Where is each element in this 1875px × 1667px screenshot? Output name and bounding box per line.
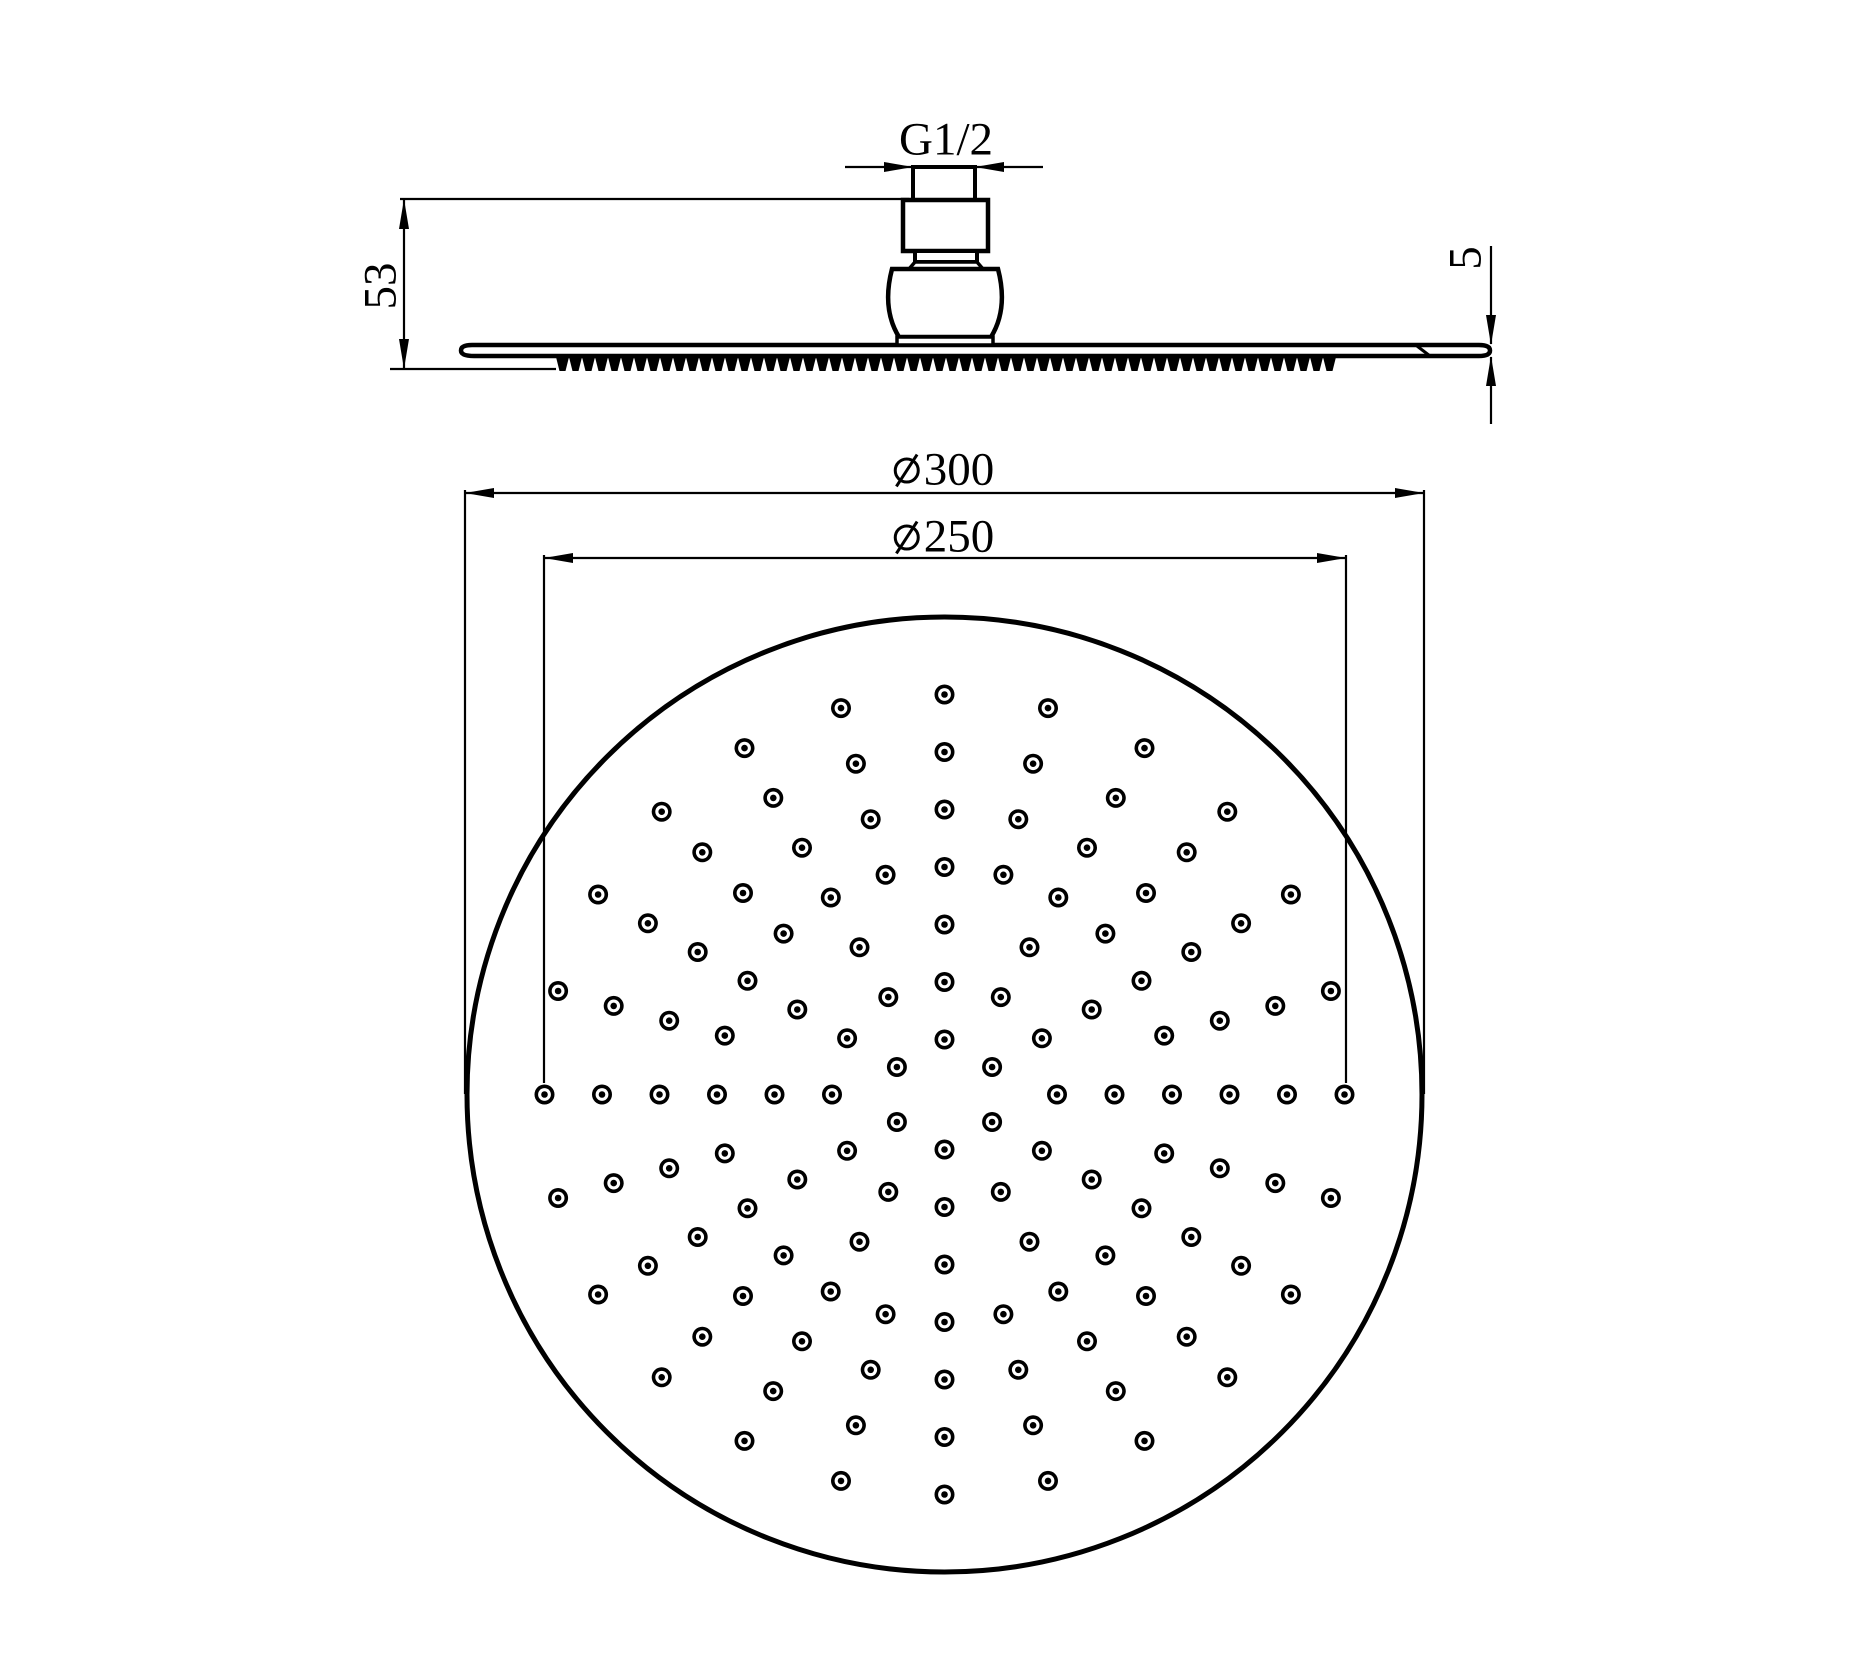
nozzle-dot [1154, 1026, 1174, 1046]
nozzle-dot [1082, 1170, 1102, 1190]
nozzle-dot [1177, 842, 1197, 862]
dim-d300-arrow-left [465, 488, 494, 498]
nozzle-dot [822, 1085, 842, 1105]
nozzle-dot [935, 1427, 955, 1447]
dimension-5 [1486, 246, 1496, 424]
nozzle-dot [548, 981, 568, 1001]
nozzle-dot [1032, 1141, 1052, 1161]
nozzle-dot [1321, 981, 1341, 1001]
nozzle-dot [935, 1197, 955, 1217]
nozzle-dot [592, 1085, 612, 1105]
nozzle-dot [1181, 942, 1201, 962]
nozzle-dot [878, 987, 898, 1007]
nozzle-dot [735, 1431, 755, 1451]
nozzle-dot [1154, 1143, 1174, 1163]
diameter-symbol [894, 524, 920, 550]
nozzle-dot [787, 1000, 807, 1020]
nozzle-dot [846, 1415, 866, 1435]
nozzle-dot [1023, 1415, 1043, 1435]
nozzle-dot [1210, 1158, 1230, 1178]
nozzle-dot [1020, 1232, 1040, 1252]
nozzle-dot [688, 942, 708, 962]
nozzle-circle-diameter-text: 250 [924, 514, 995, 561]
nozzle-dot [1082, 1000, 1102, 1020]
nozzle-dot [935, 972, 955, 992]
nozzle-dot [831, 1471, 851, 1491]
nozzle-dot [1095, 924, 1115, 944]
nozzle-dot [861, 1360, 881, 1380]
nozzle-dot [935, 685, 955, 705]
nozzle-dot [982, 1057, 1002, 1077]
nozzle-dot [935, 1312, 955, 1332]
nozzle-dot [792, 1331, 812, 1351]
edge-thickness-label: 5 [1443, 246, 1490, 270]
nozzle-dot [991, 1182, 1011, 1202]
nozzle-dot [604, 1173, 624, 1193]
nozzle-dot [652, 802, 672, 822]
nozzle-dot [774, 924, 794, 944]
dim-5-arrow-up [1486, 356, 1496, 386]
nozzle-dot [935, 742, 955, 762]
nozzle-dot [652, 1367, 672, 1387]
nozzle-dot [821, 888, 841, 908]
nozzle-dot [774, 1245, 794, 1265]
collar-base [897, 337, 993, 345]
nozzle-dots [535, 685, 1355, 1505]
diameter-symbol [894, 457, 920, 483]
nozzle-dot [935, 1030, 955, 1050]
nozzle-dot [548, 1188, 568, 1208]
spray-nozzle-teeth [556, 357, 1336, 371]
nozzle-dot [1181, 1227, 1201, 1247]
nozzle-dot [887, 1057, 907, 1077]
nozzle-dot [982, 1112, 1002, 1132]
nozzle-dot [588, 885, 608, 905]
nozzle-dot [837, 1028, 857, 1048]
nozzle-dot [1277, 1085, 1297, 1105]
nozzle-dot [1281, 1285, 1301, 1305]
nozzle-dot [878, 1182, 898, 1202]
side-view [390, 162, 1496, 424]
nozzle-dot [638, 913, 658, 933]
nozzle-dot [1177, 1327, 1197, 1347]
nozzle-dot [1095, 1245, 1115, 1265]
nozzle-dot [993, 865, 1013, 885]
nozzle-dot [935, 857, 955, 877]
edge-thickness-text: 5 [1443, 246, 1490, 270]
nozzle-dot [1077, 1331, 1097, 1351]
nozzle-dot [1281, 885, 1301, 905]
technical-drawing-canvas [0, 0, 1875, 1667]
nozzle-dot [535, 1085, 555, 1105]
nozzle-dot [1231, 913, 1251, 933]
nozzle-dot [733, 883, 753, 903]
nozzle-dot [692, 842, 712, 862]
nozzle-circle-diameter-label: 250 [894, 514, 995, 561]
nozzle-dot [831, 698, 851, 718]
nozzle-dot [1132, 971, 1152, 991]
nozzle-dot [1136, 883, 1156, 903]
nozzle-dot [993, 1304, 1013, 1324]
nozzle-dot [1220, 1085, 1240, 1105]
dim-d300-arrow-right [1395, 488, 1424, 498]
nozzle-dot [1008, 1360, 1028, 1380]
nozzle-dot [1321, 1188, 1341, 1208]
nozzle-dot [935, 1255, 955, 1275]
nozzle-dot [792, 838, 812, 858]
nozzle-dot [763, 1381, 783, 1401]
nozzle-dot [604, 996, 624, 1016]
connector-collar [888, 269, 1002, 337]
nozzle-dot [1038, 1471, 1058, 1491]
nozzle-dot [763, 788, 783, 808]
nozzle-dot [887, 1112, 907, 1132]
nozzle-dot [935, 800, 955, 820]
nozzle-dot [861, 809, 881, 829]
nozzle-dot [1038, 698, 1058, 718]
dim-d250-arrow-left [544, 553, 573, 563]
connector-nut [903, 200, 988, 251]
nozzle-dot [735, 738, 755, 758]
nozzle-dot [1048, 1282, 1068, 1302]
nozzle-dot [821, 1282, 841, 1302]
nozzle-dot [588, 1285, 608, 1305]
nozzle-dot [935, 1370, 955, 1390]
nozzle-dot [1132, 1198, 1152, 1218]
overall-height-label: 53 [358, 263, 405, 310]
dim-53-arrow-up [399, 199, 409, 229]
nozzle-dot [876, 865, 896, 885]
outer-diameter-text: 300 [924, 447, 995, 494]
nozzle-dot [1008, 809, 1028, 829]
nozzle-dot [935, 915, 955, 935]
nozzle-dot [1032, 1028, 1052, 1048]
nozzle-dot [1265, 996, 1285, 1016]
nozzle-dot [1106, 1381, 1126, 1401]
nozzle-dot [1047, 1085, 1067, 1105]
nozzle-dot [692, 1327, 712, 1347]
nozzle-dot [846, 754, 866, 774]
nozzle-dot [1217, 1367, 1237, 1387]
nozzle-dot [837, 1141, 857, 1161]
dim-d250-arrow-right [1317, 553, 1346, 563]
nozzle-dot [1020, 937, 1040, 957]
nozzle-dot [715, 1026, 735, 1046]
nozzle-dot [715, 1143, 735, 1163]
nozzle-dot [1210, 1011, 1230, 1031]
nozzle-dot [1105, 1085, 1125, 1105]
thread-size-label: G1/2 [899, 117, 993, 164]
nozzle-dot [707, 1085, 727, 1105]
nozzle-dot [738, 971, 758, 991]
nozzle-dot [1135, 1431, 1155, 1451]
nozzle-dot [659, 1011, 679, 1031]
nozzle-dot [1135, 738, 1155, 758]
outer-diameter-label: 300 [894, 447, 995, 494]
nozzle-dot [1106, 788, 1126, 808]
nozzle-dot [650, 1085, 670, 1105]
nozzle-dot [1136, 1286, 1156, 1306]
nozzle-dot [1231, 1256, 1251, 1276]
nozzle-dot [1048, 888, 1068, 908]
nozzle-dot [876, 1304, 896, 1324]
nozzle-dot [1217, 802, 1237, 822]
nozzle-dot [738, 1198, 758, 1218]
nozzle-dot [1023, 754, 1043, 774]
nozzle-dot [765, 1085, 785, 1105]
nozzle-dot [935, 1140, 955, 1160]
nozzle-dot [1265, 1173, 1285, 1193]
dim-53-arrow-down [399, 339, 409, 369]
inlet-thread-pipe [913, 167, 975, 200]
nozzle-dot [850, 937, 870, 957]
technical-drawing-page: G1/2 53 5 300 250 [0, 0, 1875, 1667]
nozzle-dot [638, 1256, 658, 1276]
nozzle-dot [659, 1158, 679, 1178]
dim-5-arrow-down [1486, 315, 1496, 345]
overall-height-text: 53 [358, 263, 405, 310]
plan-view [465, 488, 1424, 1572]
nozzle-dot [1077, 838, 1097, 858]
nozzle-dot [733, 1286, 753, 1306]
nozzle-dot [991, 987, 1011, 1007]
nozzle-dot [1162, 1085, 1182, 1105]
nozzle-dot [787, 1170, 807, 1190]
nozzle-dot [935, 1485, 955, 1505]
nozzle-dot [850, 1232, 870, 1252]
thread-size-text: G1/2 [899, 117, 993, 164]
nozzle-dot [688, 1227, 708, 1247]
nozzle-dot [1335, 1085, 1355, 1105]
